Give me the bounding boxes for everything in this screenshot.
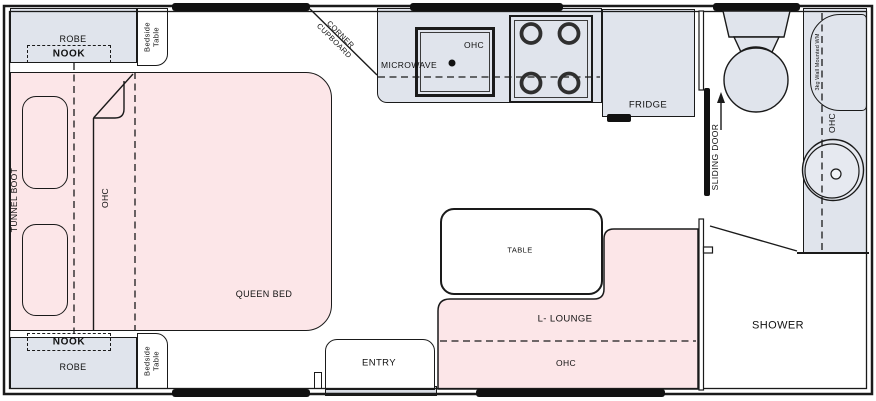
shower-door-swing [710,226,797,251]
entry-label: ENTRY [362,359,396,370]
bedside-table-bottom-label: Bedside Table [143,341,160,381]
lounge-label: L- LOUNGE [538,315,593,326]
toilet-cistern [723,11,790,37]
shower-door-stop [704,247,713,253]
sliding-door-arrowhead [717,92,725,103]
shower-wall [699,219,704,390]
bedside-table-top-label: Bedside Table [143,17,160,57]
nook-bottom-label: NOOK [53,336,85,348]
corner-cupboard-label: CORNER CUPBOARD [311,12,363,64]
table-label: TABLE [507,247,532,256]
microwave-label: MICROWAVE [381,61,437,71]
bed-ohc-label: OHC [101,188,111,208]
stove-inner-frame [514,20,588,98]
vanity-ohc-label: OHC [828,113,838,133]
entry-door-frame [314,372,322,389]
washing-machine-label: 3kg Wall Mounted WM [815,33,821,90]
window-top-bathroom [713,3,800,11]
window-bottom-lounge [476,389,665,397]
caravan-floor-plan: ROBE NOOK Bedside Table TUNNEL BOOT OHC … [0,0,876,401]
toilet-bowl [724,48,788,112]
toilet-neck [734,37,779,52]
pillow-top [22,96,68,189]
queen-bed-label: QUEEN BED [236,289,293,299]
fridge-label: FRIDGE [629,101,667,112]
window-bottom-bedroom [172,389,310,397]
lounge-ohc-label: OHC [556,359,576,369]
kitchen-ohc-label: OHC [464,41,484,51]
bathroom-partition-wall [699,11,704,90]
pillow-bottom [22,224,68,316]
fridge-vent [607,114,631,122]
shower-label: SHOWER [752,320,804,333]
tunnel-boot-label: TUNNEL BOOT [10,168,20,233]
sliding-door [704,88,710,196]
robe-top-label: ROBE [59,34,86,44]
toilet-seat [729,47,783,101]
sliding-door-label: SLIDING DOOR [711,124,721,191]
window-top-bedroom [172,3,310,11]
nook-top-label: NOOK [53,48,85,60]
robe-bottom-label: ROBE [59,362,86,372]
